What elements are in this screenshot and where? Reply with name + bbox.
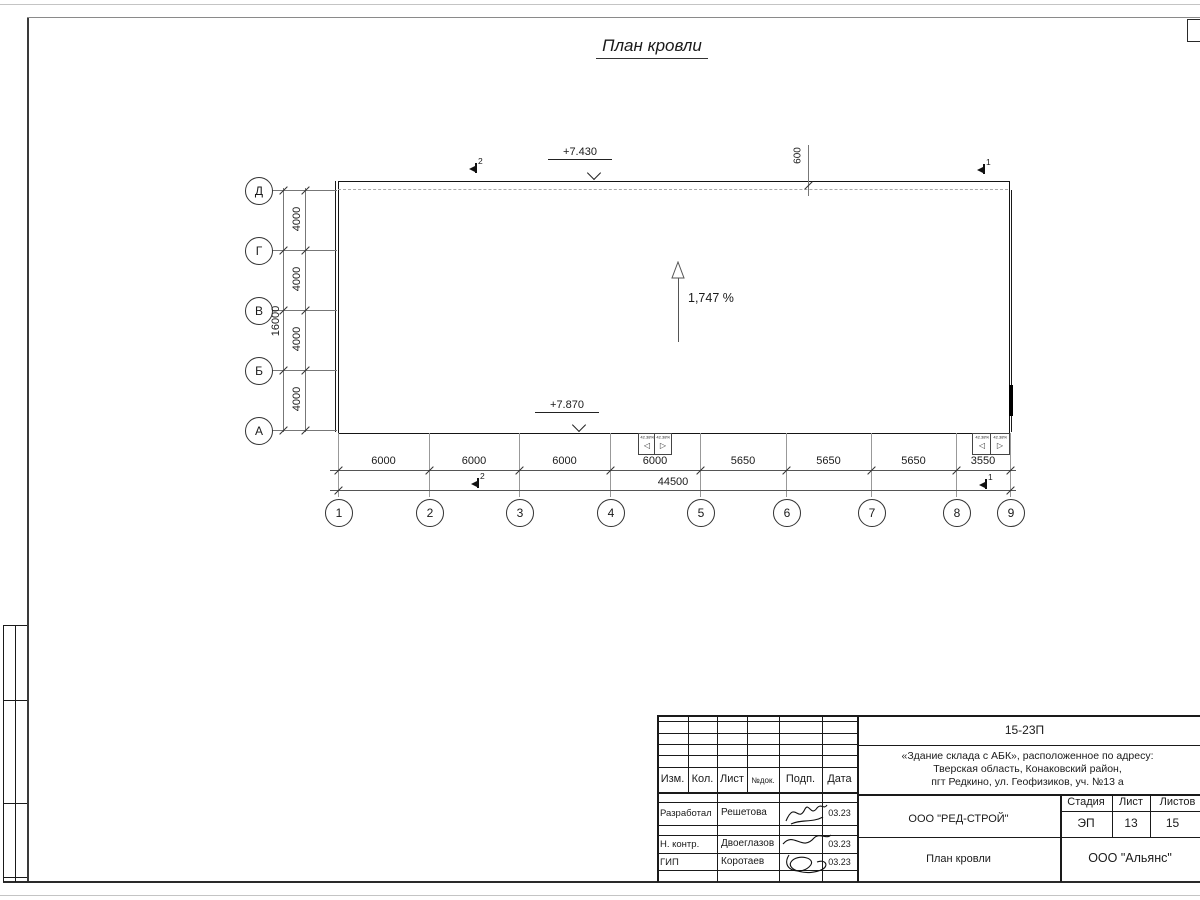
title-block-line <box>657 744 857 745</box>
row-role: Разработал <box>660 808 712 819</box>
sheets-label: Листов <box>1150 796 1200 808</box>
col-axis-label: 8 <box>954 506 961 520</box>
title-block-line <box>657 715 659 882</box>
col-header-data: Дата <box>822 773 857 785</box>
drain-box: 42.38% ▷ <box>654 433 672 455</box>
dim-label: 5650 <box>784 455 874 467</box>
row-axis-bubble-4: Б <box>245 357 273 385</box>
row-role: Н. контр. <box>660 839 699 850</box>
signature-icon <box>782 797 830 827</box>
drawing-title: План кровли <box>857 853 1060 865</box>
axis-d-dashed-line <box>338 189 1008 190</box>
row-axis-bubble-5: А <box>245 417 273 445</box>
elevation-mark-top: +7.430 <box>548 146 612 160</box>
col-axis-label: 9 <box>1008 506 1015 520</box>
title-block-line <box>657 755 857 756</box>
drain-slope-value: 42.38% <box>975 435 989 440</box>
section-number: 2 <box>478 156 483 166</box>
col-axis-bubble-1: 1 <box>325 499 353 527</box>
col-header-izm: Изм. <box>657 773 688 785</box>
sheets-value: 15 <box>1150 816 1195 830</box>
col-header-ndok: №док. <box>747 776 779 785</box>
row-axis-bubble-1: Д <box>245 177 273 205</box>
row-axis-bubble-2: Г <box>245 237 273 265</box>
title-block-line <box>717 715 718 882</box>
col-axis-label: 3 <box>517 506 524 520</box>
stage-label: Стадия <box>1060 796 1112 808</box>
row-axis-label: А <box>255 424 263 438</box>
col-header-kol: Кол. <box>688 773 717 785</box>
col-axis-label: 1 <box>336 506 343 520</box>
org-name: ООО "Альянс" <box>1060 851 1200 865</box>
dim-label-total: 44500 <box>628 476 718 488</box>
col-axis-label: 6 <box>784 506 791 520</box>
address-line: Тверская область, Конаковский район, <box>860 763 1195 775</box>
corner-inventory-box <box>1187 19 1200 42</box>
section-bar-icon <box>985 479 987 489</box>
dim-label: 3550 <box>938 455 1028 467</box>
drain-slope-value: 42.38% <box>993 435 1007 440</box>
title-block-line <box>657 721 857 722</box>
margin-box-line <box>3 877 27 878</box>
section-bar-icon <box>477 478 479 488</box>
slope-label: 1,747 % <box>688 291 734 305</box>
horizontal-dim-line <box>330 490 1016 491</box>
col-axis-label: 7 <box>869 506 876 520</box>
signature-icon <box>777 829 835 879</box>
dim-label: 6000 <box>339 455 429 467</box>
roof-edge-inner-left <box>335 181 336 432</box>
section-mark-1-top: 1 <box>977 162 995 177</box>
dim-label: 5650 <box>698 455 788 467</box>
col-axis-bubble-2: 2 <box>416 499 444 527</box>
sheet-label: Лист <box>1112 796 1150 808</box>
roof-edge-thick-segment <box>1009 385 1013 416</box>
section-number: 1 <box>986 157 991 167</box>
horizontal-dim-line <box>330 470 1016 471</box>
dim-label-4000: 4000 <box>291 189 303 249</box>
row-role: ГИП <box>660 857 679 868</box>
address-line: «Здание склада с АБК», расположенное по … <box>860 750 1195 762</box>
col-axis-label: 4 <box>608 506 615 520</box>
arrow-right-icon: ▷ <box>997 442 1003 450</box>
row-axis-label: Д <box>255 184 263 198</box>
section-bar-icon <box>983 164 985 174</box>
page-edge-bottom <box>0 895 1200 896</box>
drain-box: 42.38% ▷ <box>990 433 1010 455</box>
col-axis-bubble-6: 6 <box>773 499 801 527</box>
title-block-line <box>657 715 1200 717</box>
dim-label-4000: 4000 <box>291 249 303 309</box>
address-line: пгт Редкино, ул. Геофизиков, уч. №13 а <box>860 776 1195 788</box>
col-axis-bubble-9: 9 <box>997 499 1025 527</box>
row-name: Коротаев <box>721 856 764 867</box>
arrow-right-icon: ▷ <box>660 442 666 450</box>
frame-left <box>27 17 29 882</box>
section-mark-2-top: 2 <box>469 161 487 176</box>
slope-arrow-head-icon <box>670 261 686 279</box>
title-block-line <box>657 792 857 794</box>
row-name: Двоеглазов <box>721 838 774 849</box>
col-header-podp: Подп. <box>779 773 822 785</box>
row-axis-label: Б <box>255 364 263 378</box>
elevation-mark-bottom: +7.870 <box>535 399 599 413</box>
title-block-line <box>857 745 1200 746</box>
margin-box-line <box>3 625 27 626</box>
page-title: План кровли <box>596 36 708 59</box>
margin-box-line <box>3 625 4 882</box>
drain-slope-value: 42.38% <box>640 435 654 440</box>
dim-label: 6000 <box>520 455 610 467</box>
drain-slope-value: 42.38% <box>656 435 670 440</box>
roof-outline <box>338 181 1010 434</box>
arrow-left-icon: ◁ <box>644 442 650 450</box>
col-axis-label: 5 <box>698 506 705 520</box>
dim-label-4000: 4000 <box>291 369 303 429</box>
section-number: 2 <box>480 471 485 481</box>
row-axis-bubble-3: В <box>245 297 273 325</box>
dim-label-600: 600 <box>793 126 804 186</box>
frame-bottom <box>3 881 1200 883</box>
col-axis-label: 2 <box>427 506 434 520</box>
title-block-line <box>657 767 857 768</box>
margin-box-line <box>3 803 27 804</box>
title-block-line <box>857 837 1200 838</box>
elevation-arrow-icon <box>587 166 601 180</box>
col-axis-bubble-5: 5 <box>687 499 715 527</box>
dim-label-16000: 16000 <box>270 281 282 361</box>
col-axis-bubble-3: 3 <box>506 499 534 527</box>
frame-top <box>27 17 1200 18</box>
col-axis-bubble-8: 8 <box>943 499 971 527</box>
drain-box: 42.38% ◁ <box>972 433 992 455</box>
margin-box-line <box>3 700 27 701</box>
col-header-list: Лист <box>717 773 747 785</box>
col-axis-bubble-7: 7 <box>858 499 886 527</box>
row-axis-label: Г <box>256 244 263 258</box>
arrow-left-icon: ◁ <box>979 442 985 450</box>
dim-label: 6000 <box>429 455 519 467</box>
sheet-value: 13 <box>1112 816 1150 830</box>
stage-value: ЭП <box>1060 816 1112 830</box>
title-block-line <box>657 733 857 734</box>
page-edge-top <box>0 4 1200 5</box>
section-number: 1 <box>988 472 993 482</box>
margin-box-line <box>15 625 16 882</box>
dim-label-4000: 4000 <box>291 309 303 369</box>
dim-label: 6000 <box>610 455 700 467</box>
row-name: Решетова <box>721 807 767 818</box>
slope-arrow-shaft <box>678 278 679 342</box>
company-name: ООО "РЕД-СТРОЙ" <box>857 813 1060 825</box>
col-axis-bubble-4: 4 <box>597 499 625 527</box>
drawing-sheet: План кровли Д Г В Б А 4000 4000 <box>0 0 1200 900</box>
title-block-line <box>1060 811 1200 812</box>
section-bar-icon <box>475 163 477 173</box>
doc-number: 15-23П <box>857 723 1192 737</box>
parapet-dim-line <box>808 145 809 196</box>
row-axis-label: В <box>255 304 263 318</box>
